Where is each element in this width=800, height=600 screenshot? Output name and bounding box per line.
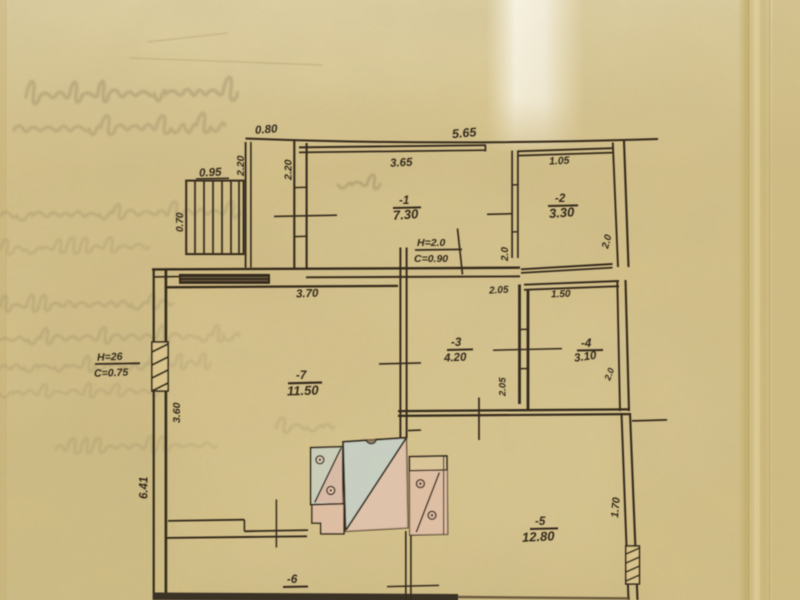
svg-text:2.20: 2.20 bbox=[283, 159, 295, 181]
svg-text:3.60: 3.60 bbox=[171, 402, 183, 423]
svg-text:H=2.0: H=2.0 bbox=[417, 237, 445, 249]
svg-text:-1: -1 bbox=[399, 195, 409, 207]
svg-text:2.20: 2.20 bbox=[235, 155, 247, 177]
svg-text:-5: -5 bbox=[535, 516, 546, 528]
svg-text:2.05: 2.05 bbox=[498, 377, 509, 397]
svg-text:3.65: 3.65 bbox=[390, 157, 414, 170]
svg-text:5.65: 5.65 bbox=[451, 125, 478, 141]
svg-text:-6: -6 bbox=[287, 574, 298, 586]
svg-text:1.70: 1.70 bbox=[609, 497, 623, 519]
svg-text:1.50: 1.50 bbox=[551, 289, 571, 301]
svg-text:6.41: 6.41 bbox=[139, 477, 151, 499]
svg-text:-4: -4 bbox=[581, 338, 592, 350]
svg-text:C=0.90: C=0.90 bbox=[414, 253, 448, 265]
svg-text:-7: -7 bbox=[296, 370, 307, 382]
svg-text:1.05: 1.05 bbox=[549, 155, 570, 168]
svg-text:7.30: 7.30 bbox=[392, 206, 419, 223]
svg-text:C=0.75: C=0.75 bbox=[94, 367, 129, 380]
svg-text:3.30: 3.30 bbox=[548, 204, 575, 221]
svg-text:0.70: 0.70 bbox=[175, 212, 186, 232]
svg-text:-3: -3 bbox=[451, 337, 462, 349]
svg-text:0.80: 0.80 bbox=[255, 123, 279, 137]
svg-text:4.20: 4.20 bbox=[443, 351, 468, 364]
svg-text:2.05: 2.05 bbox=[488, 285, 509, 297]
svg-text:11.50: 11.50 bbox=[287, 382, 320, 398]
svg-text:3.70: 3.70 bbox=[296, 288, 319, 301]
svg-text:2.0: 2.0 bbox=[500, 247, 511, 262]
svg-text:12.80: 12.80 bbox=[522, 528, 556, 545]
svg-text:-2: -2 bbox=[555, 193, 566, 205]
svg-text:H=26: H=26 bbox=[97, 351, 123, 364]
